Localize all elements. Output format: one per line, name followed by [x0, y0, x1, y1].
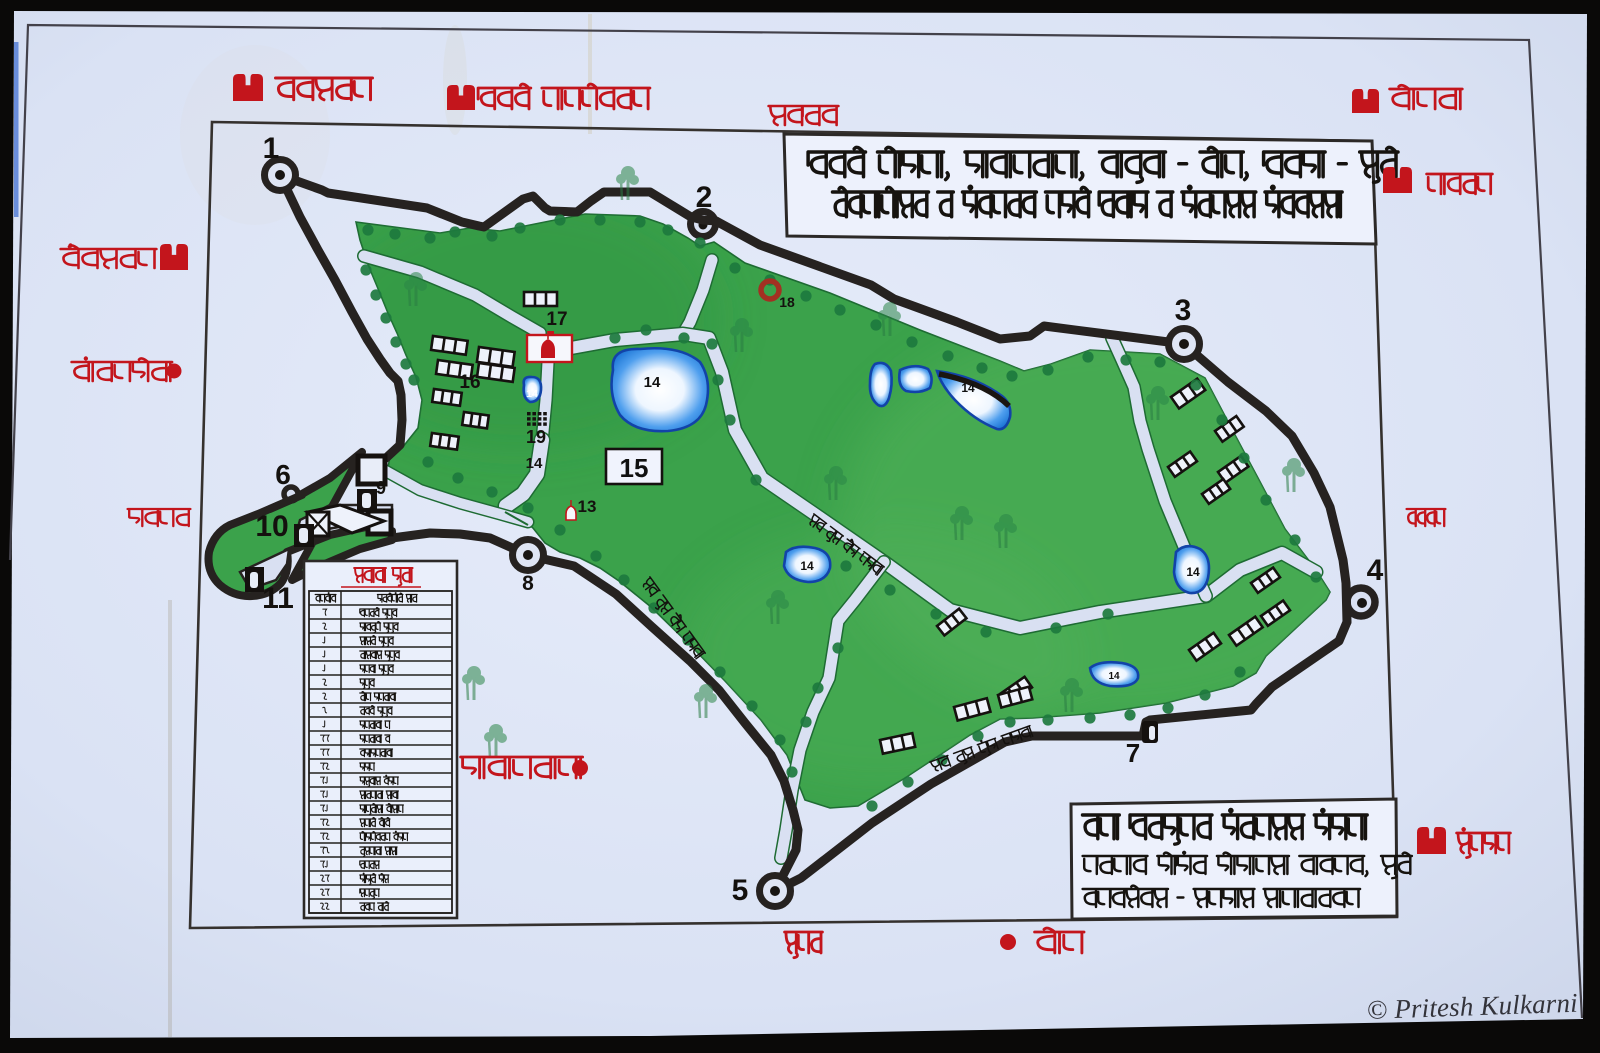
svg-text:14: 14 — [526, 388, 538, 400]
svg-text:14: 14 — [1186, 565, 1200, 579]
svg-text:1: 1 — [263, 132, 280, 165]
svg-text:13: 13 — [578, 497, 597, 516]
svg-text:15: 15 — [620, 453, 649, 483]
svg-text:16: 16 — [459, 372, 480, 393]
svg-text:2: 2 — [696, 181, 713, 214]
svg-text:10: 10 — [255, 510, 288, 543]
svg-text:18: 18 — [779, 294, 795, 310]
svg-text:3: 3 — [1175, 294, 1192, 327]
svg-text:6: 6 — [275, 459, 291, 490]
svg-text:14: 14 — [526, 455, 543, 472]
svg-text:4: 4 — [1367, 554, 1384, 587]
svg-text:17: 17 — [546, 309, 567, 330]
svg-text:14: 14 — [644, 374, 661, 391]
svg-text:14: 14 — [1108, 671, 1120, 682]
svg-text:9: 9 — [376, 478, 386, 498]
svg-text:5: 5 — [732, 874, 749, 907]
svg-text:14: 14 — [800, 559, 814, 573]
svg-text:8: 8 — [522, 572, 534, 595]
svg-text:7: 7 — [1126, 738, 1140, 768]
svg-text:19: 19 — [526, 427, 546, 447]
svg-text:14: 14 — [961, 381, 975, 395]
svg-text:11: 11 — [262, 582, 294, 615]
